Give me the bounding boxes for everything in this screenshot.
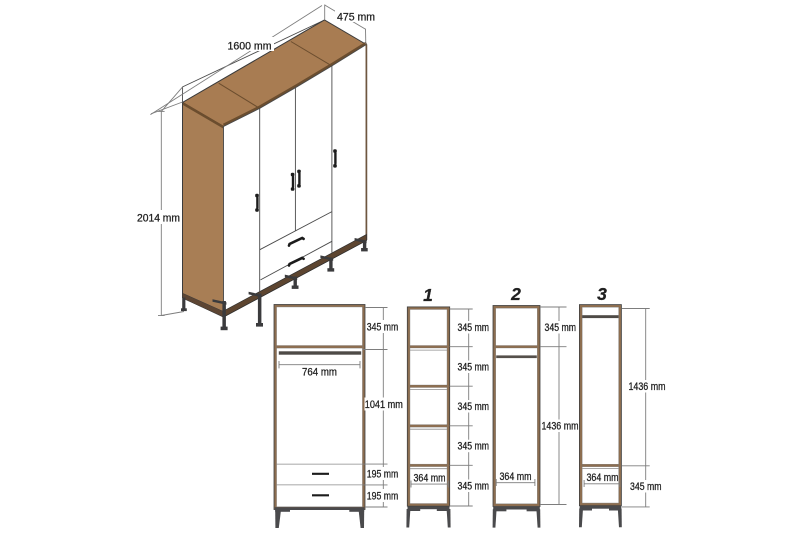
svg-text:345 mm: 345 mm — [458, 441, 490, 453]
svg-text:345 mm: 345 mm — [458, 481, 490, 493]
svg-text:764 mm: 764 mm — [302, 367, 337, 379]
svg-text:364 mm: 364 mm — [414, 473, 446, 485]
svg-text:1041 mm: 1041 mm — [365, 399, 403, 411]
svg-text:345 mm: 345 mm — [458, 401, 490, 413]
svg-text:3: 3 — [597, 284, 607, 304]
svg-text:195 mm: 195 mm — [367, 469, 399, 481]
svg-text:2: 2 — [510, 284, 521, 304]
svg-text:1436 mm: 1436 mm — [542, 421, 579, 433]
svg-text:1600 mm: 1600 mm — [228, 41, 272, 53]
svg-text:1436 mm: 1436 mm — [629, 381, 666, 393]
svg-text:475 mm: 475 mm — [337, 12, 375, 24]
svg-text:345 mm: 345 mm — [458, 322, 490, 334]
svg-text:345 mm: 345 mm — [545, 322, 577, 334]
svg-text:345 mm: 345 mm — [630, 481, 662, 493]
svg-text:195 mm: 195 mm — [367, 491, 399, 503]
svg-text:345 mm: 345 mm — [458, 362, 490, 374]
svg-text:1: 1 — [423, 285, 433, 305]
svg-text:2014 mm: 2014 mm — [137, 213, 180, 225]
svg-text:345 mm: 345 mm — [367, 322, 399, 334]
svg-text:364 mm: 364 mm — [500, 471, 532, 483]
svg-text:364 mm: 364 mm — [587, 472, 619, 484]
